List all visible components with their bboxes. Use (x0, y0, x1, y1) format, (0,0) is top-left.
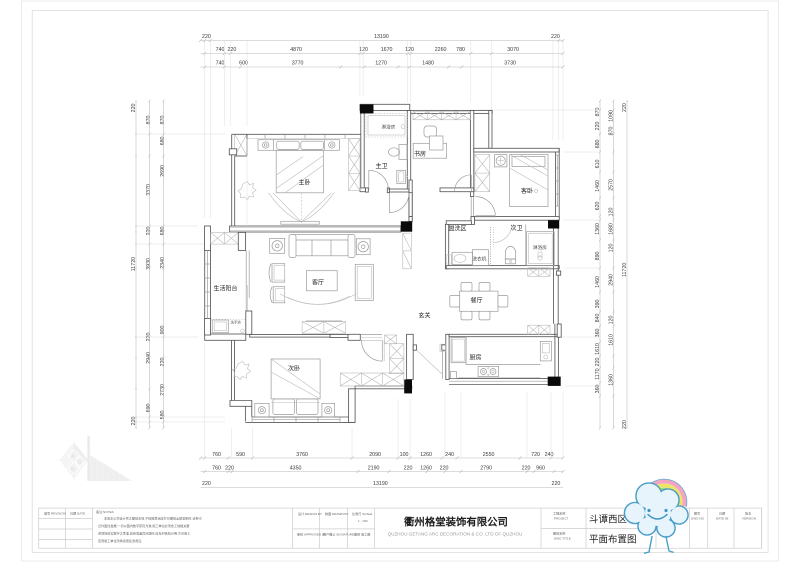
svg-text:玄关: 玄关 (419, 312, 431, 320)
svg-text:220: 220 (227, 47, 236, 53)
svg-text:1610: 1610 (609, 334, 615, 346)
svg-text:制图 DRAWN BY: 制图 DRAWN BY (325, 511, 349, 516)
svg-text:次卧: 次卧 (288, 365, 300, 373)
svg-text:13190: 13190 (373, 481, 388, 487)
svg-text:220: 220 (522, 466, 531, 472)
svg-text:240: 240 (445, 452, 454, 458)
svg-text:书房: 书房 (414, 150, 426, 158)
svg-text:比例尺 SCALE: 比例尺 SCALE (352, 511, 372, 516)
svg-text:客卧: 客卧 (521, 187, 533, 195)
svg-text:图纸名称: 图纸名称 (553, 531, 565, 536)
svg-text:220: 220 (131, 416, 137, 425)
svg-text:非签本公司设计师之图纸无效,不得随意涂改打印图纸全额复制时,: 非签本公司设计师之图纸无效,不得随意涂改打印图纸全额复制时,请务印 (104, 516, 202, 521)
svg-text:760: 760 (212, 466, 221, 472)
svg-text:1460: 1460 (595, 276, 601, 288)
svg-text:A: A (71, 454, 75, 460)
svg-text:2940: 2940 (146, 352, 152, 364)
svg-text:4350: 4350 (290, 466, 302, 472)
svg-text:1170: 1170 (595, 368, 601, 379)
svg-text:720: 720 (531, 452, 540, 458)
svg-text:740: 740 (216, 47, 225, 53)
svg-text:220: 220 (202, 481, 211, 487)
svg-text:1460: 1460 (595, 180, 601, 192)
svg-text:690: 690 (146, 403, 152, 412)
svg-text:1360: 1360 (609, 374, 615, 386)
svg-text:3770: 3770 (292, 61, 304, 67)
svg-text:D: D (78, 460, 82, 466)
svg-text:2550: 2550 (483, 452, 495, 458)
svg-text:1480: 1480 (422, 61, 434, 67)
svg-text:680: 680 (595, 139, 601, 148)
svg-text:2190: 2190 (368, 466, 380, 472)
svg-text:1680: 1680 (609, 223, 615, 235)
svg-text:餐厅: 餐厅 (471, 297, 483, 305)
svg-text:220: 220 (146, 226, 152, 235)
svg-text:870: 870 (146, 115, 152, 124)
svg-text:13190: 13190 (374, 34, 389, 40)
svg-text:客厅: 客厅 (312, 279, 324, 287)
svg-text:960: 960 (536, 466, 545, 472)
svg-text:11720: 11720 (622, 263, 628, 277)
svg-text:680: 680 (160, 226, 166, 235)
svg-text:3730: 3730 (504, 61, 516, 67)
svg-text:120: 120 (405, 47, 414, 53)
svg-text:主卫: 主卫 (376, 162, 388, 170)
svg-text:平面布置图: 平面布置图 (589, 534, 637, 546)
svg-text:DATE 06: DATE 06 (716, 517, 729, 521)
svg-text:衢州格堂装饰有限公司: 衢州格堂装饰有限公司 (404, 516, 508, 529)
svg-text:工程名称: 工程名称 (553, 511, 565, 516)
svg-text:120: 120 (609, 315, 615, 324)
svg-text:610: 610 (595, 159, 601, 168)
svg-text:3930: 3930 (146, 258, 152, 270)
svg-text:1360: 1360 (595, 223, 601, 235)
svg-text:360: 360 (595, 328, 601, 337)
svg-text:590: 590 (236, 452, 245, 458)
svg-text:设计 DESIGN BY: 设计 DESIGN BY (298, 511, 322, 516)
svg-text:VERSION: VERSION (742, 517, 756, 521)
svg-text:盥洗区: 盥洗区 (449, 225, 467, 233)
svg-text:日期: 日期 (719, 511, 725, 516)
svg-text:淋浴房: 淋浴房 (533, 244, 547, 251)
svg-text:220: 220 (440, 466, 449, 472)
svg-text:120: 120 (359, 47, 368, 53)
svg-text:1610: 1610 (595, 343, 601, 355)
svg-text:2260: 2260 (435, 47, 447, 53)
svg-text:3370: 3370 (146, 184, 152, 196)
svg-text:编号 REVISION: 编号 REVISION (44, 511, 66, 516)
svg-text:1090: 1090 (609, 110, 615, 122)
svg-text:PROJECT: PROJECT (554, 517, 569, 521)
svg-text:11720: 11720 (131, 257, 137, 271)
svg-text:2790: 2790 (480, 466, 492, 472)
svg-text:1260: 1260 (420, 466, 432, 472)
svg-text:淋浴房: 淋浴房 (382, 124, 396, 131)
svg-text:740: 740 (216, 61, 225, 67)
svg-text:680: 680 (160, 136, 166, 145)
svg-text:否则施工单位须承担责任含责任.: 否则施工单位须承担责任含责任. (98, 538, 142, 543)
svg-text:1270: 1270 (375, 61, 387, 67)
svg-text:次卫: 次卫 (511, 224, 523, 232)
svg-text:斗谭西区: 斗谭西区 (589, 514, 628, 526)
svg-text:2570: 2570 (609, 179, 615, 191)
svg-text:1670: 1670 (381, 47, 393, 53)
svg-text:2340: 2340 (160, 257, 166, 269)
svg-text:840: 840 (595, 313, 601, 322)
svg-text:洗衣机: 洗衣机 (473, 256, 487, 263)
svg-text:B: B (71, 467, 75, 473)
svg-text:760: 760 (212, 452, 221, 458)
svg-text:厨房: 厨房 (470, 354, 482, 362)
svg-text:220: 220 (622, 420, 628, 429)
svg-text:DWG NO.: DWG NO. (691, 517, 705, 521)
svg-text:客户确认 SIGNATURE: 客户确认 SIGNATURE (323, 532, 354, 537)
svg-text:120: 120 (609, 243, 615, 252)
svg-text:主卧: 主卧 (299, 179, 311, 187)
svg-text:生活阳台: 生活阳台 (214, 285, 238, 293)
svg-text:390: 390 (595, 299, 601, 308)
svg-text:3070: 3070 (507, 47, 519, 53)
svg-text:900: 900 (160, 325, 166, 334)
svg-text:2090: 2090 (369, 452, 381, 458)
svg-text:620: 620 (595, 201, 601, 210)
svg-text:图号: 图号 (694, 511, 700, 516)
svg-text:求现场核实数字之悉准,如有误差异问题时,应及时告知分明,方可: 求现场核实数字之悉准,如有误差异问题时,应及时告知分明,方可施工 (98, 531, 190, 536)
svg-text:审核 APPROVED BY: 审核 APPROVED BY (297, 532, 326, 537)
svg-text:870: 870 (595, 107, 601, 116)
svg-text:220: 220 (551, 34, 560, 40)
svg-text:2940: 2940 (609, 274, 615, 286)
svg-text:2690: 2690 (160, 165, 166, 177)
svg-text:100: 100 (400, 452, 409, 458)
svg-text:220: 220 (595, 357, 601, 366)
svg-text:QUZHOU GETANG ARC DECORATION: QUZHOU GETANG ARC DECORATION & CO. LTD O… (388, 532, 523, 537)
svg-text:记外围性发展,一切以图内数字研究为准,施工单位必须依工地相关: 记外围性发展,一切以图内数字研究为准,施工单位必须依工地相关要 (98, 523, 189, 528)
svg-text:备注 NOTES: 备注 NOTES (96, 509, 114, 514)
svg-text:3760: 3760 (296, 452, 308, 458)
svg-text:220: 220 (595, 121, 601, 130)
svg-text:220: 220 (131, 103, 137, 112)
svg-text:1 : 100: 1 : 100 (358, 519, 368, 523)
svg-text:220: 220 (404, 466, 413, 472)
svg-text:洗手池: 洗手池 (231, 320, 242, 325)
svg-text:120: 120 (609, 207, 615, 216)
svg-text:1260: 1260 (420, 452, 432, 458)
svg-text:4870: 4870 (290, 47, 302, 53)
svg-text:图别 施工图: 图别 施工图 (354, 532, 370, 537)
svg-text:220: 220 (552, 481, 561, 487)
svg-text:890: 890 (595, 251, 601, 260)
svg-text:版本: 版本 (745, 511, 751, 516)
svg-text:220: 220 (622, 103, 628, 112)
svg-text:600: 600 (239, 61, 248, 67)
svg-text:220: 220 (202, 34, 211, 40)
svg-text:870: 870 (160, 115, 166, 124)
svg-text:DWG TITLE: DWG TITLE (554, 537, 571, 541)
svg-text:780: 780 (456, 47, 465, 53)
svg-text:日期 DATE: 日期 DATE (70, 511, 85, 516)
